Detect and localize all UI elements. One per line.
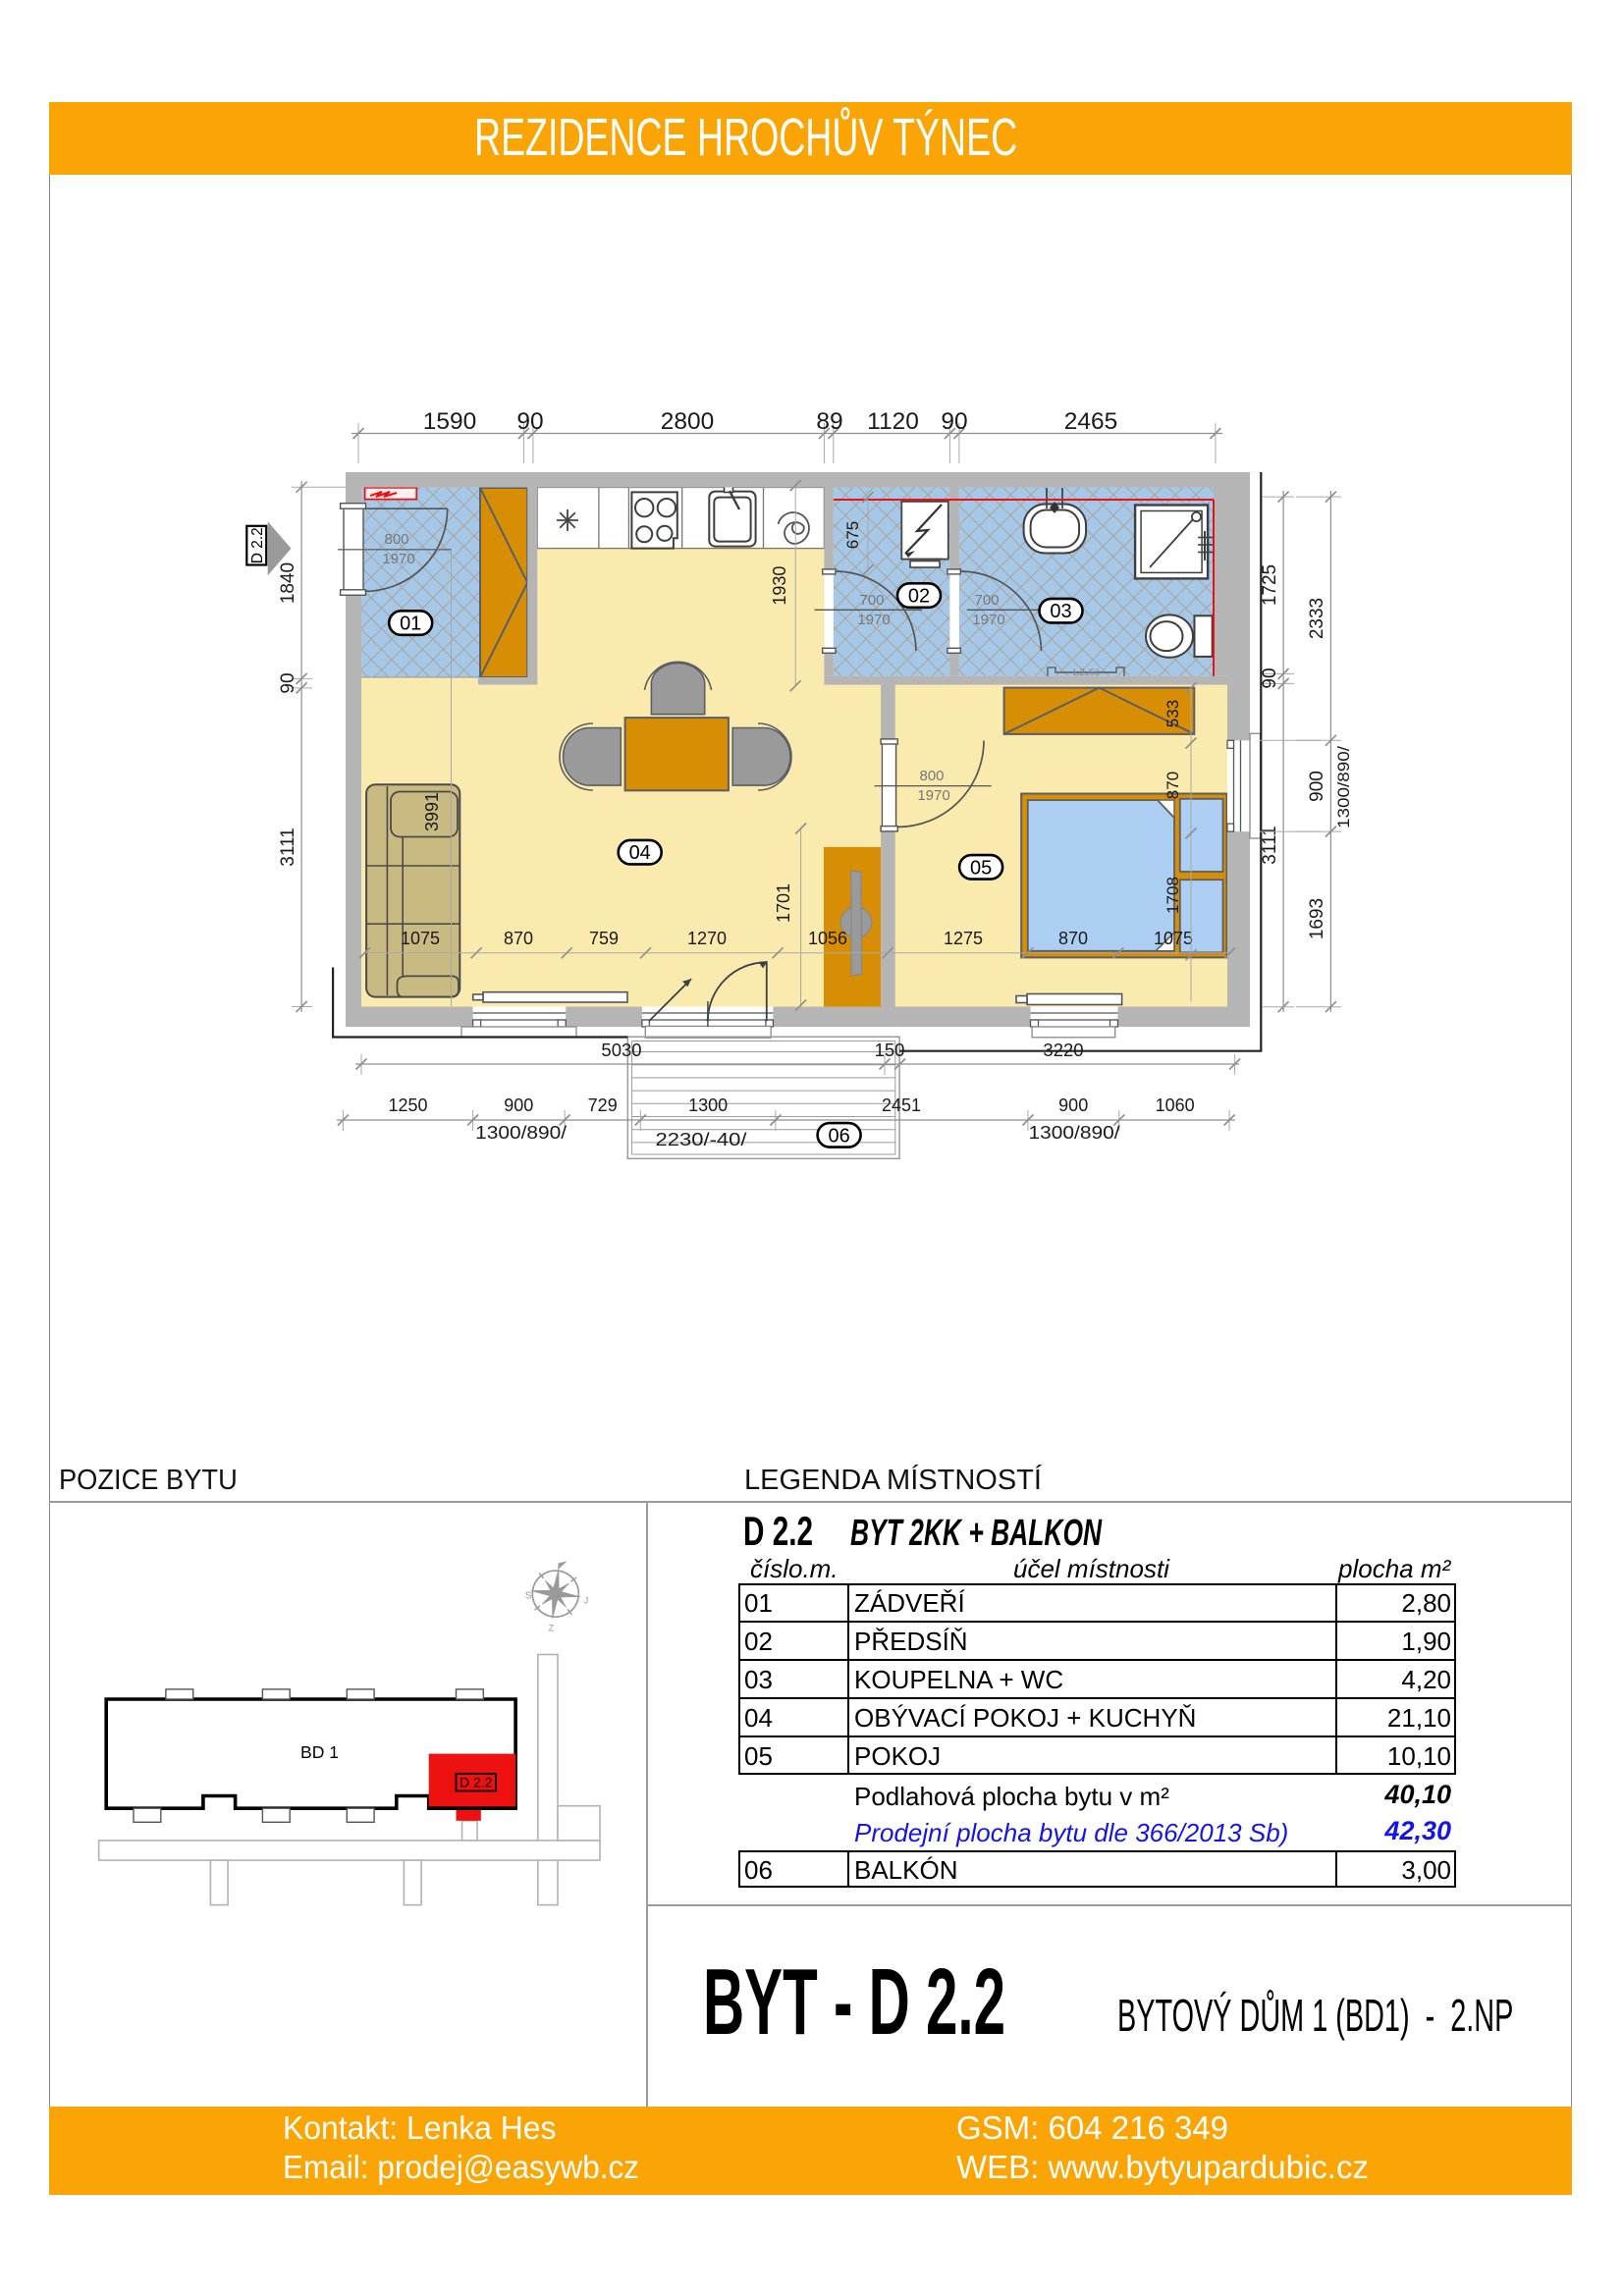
svg-text:D 2.2: D 2.2 [460,1775,493,1790]
svg-text:S: S [525,1591,532,1602]
svg-text:Z: Z [549,1624,555,1633]
svg-text:J: J [584,1596,589,1606]
svg-text:BD 1: BD 1 [300,1742,339,1762]
